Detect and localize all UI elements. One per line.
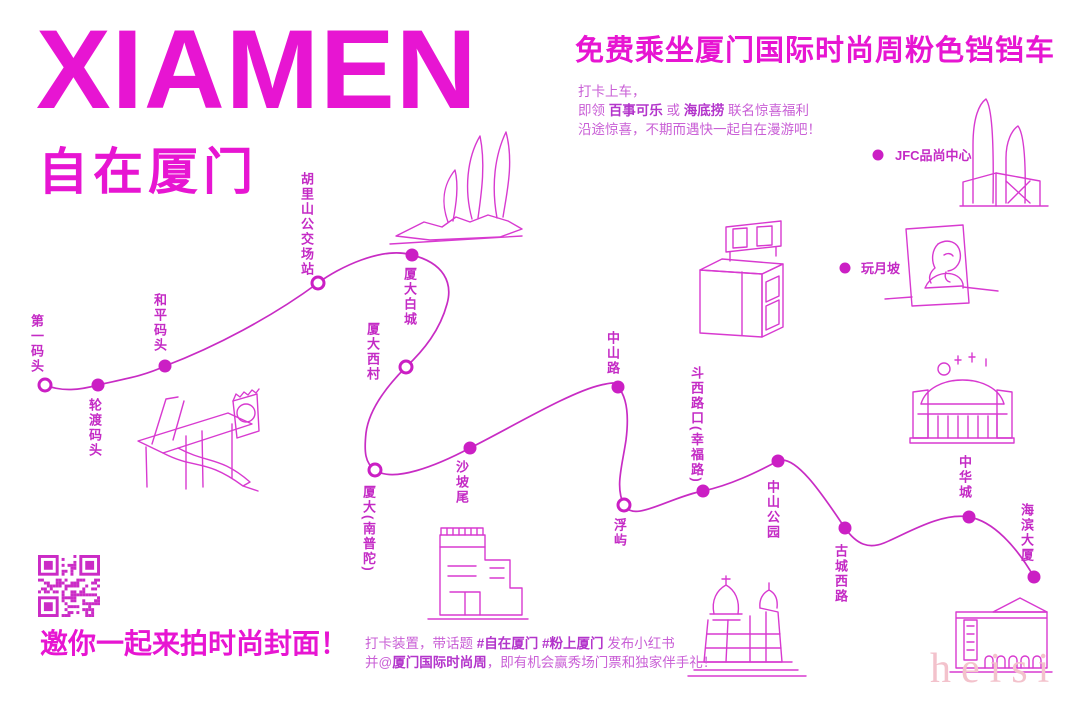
copy-line-2: 即领 百事可乐 或 海底捞 联名惊喜福利: [578, 101, 821, 120]
jfc-landmark-dot: [873, 150, 884, 161]
copy-line-1: 打卡上车，: [578, 82, 821, 101]
jfc-towers-illustration: [960, 99, 1048, 206]
stop-label-fuyu: 浮屿: [613, 518, 626, 548]
stop-label-zhongshangongyuan: 中山公园: [766, 480, 779, 540]
stop-label-hepingmatou: 和平码头: [153, 293, 166, 353]
stop-label-lundumatou: 轮渡码头: [88, 398, 101, 458]
moon-lady-illustration: [885, 225, 998, 306]
poster-subtitle: 自在厦门: [38, 147, 258, 197]
stop-label-douxilukou: 斗西路口(幸福路): [690, 366, 703, 484]
stop-label-nanputuo: 厦大(南普陀): [362, 485, 375, 573]
note-line-2: 并@厦门国际时尚周，即有机会赢秀场门票和独家伴手礼！: [365, 653, 716, 672]
wanyuepo-landmark-dot: [840, 263, 851, 274]
stop-label-xiadabaicheng: 厦大白城: [403, 267, 416, 327]
stop-label-shapowei: 沙坡尾: [455, 460, 468, 505]
stop-label-diyimatou: 第一码头: [30, 314, 43, 374]
stop-label-hulishan: 胡里山公交场站: [300, 172, 313, 277]
headline: 免费乘坐厦门国际时尚周粉色铛铛车: [575, 36, 1055, 68]
fashion-week-mention: 厦门国际时尚周: [392, 655, 487, 670]
stop-label-guchengxilu: 古城西路: [834, 544, 847, 604]
stop-label-zhonghuacheng: 中华城: [958, 455, 971, 500]
ferry-terminal-illustration: [138, 389, 259, 491]
pepsi-brand: 百事可乐: [609, 103, 663, 118]
watermark: heisi: [930, 648, 1059, 690]
zhongshan-building-illustration: [700, 221, 783, 337]
haidilao-brand: 海底捞: [684, 103, 725, 118]
shapowei-building-illustration: [428, 528, 528, 619]
poster-title: XIAMEN: [36, 14, 478, 126]
footer-note: 打卡装置，带话题 #自在厦门 #粉上厦门 发布小红书 并@厦门国际时尚周，即有机…: [365, 634, 716, 672]
note-line-1: 打卡装置，带话题 #自在厦门 #粉上厦门 发布小红书: [365, 634, 716, 653]
stop-label-zhongshanlu: 中山路: [606, 331, 619, 376]
hashtags: #自在厦门 #粉上厦门: [477, 636, 604, 651]
footer-tagline: 邀你一起来拍时尚封面！: [40, 630, 348, 658]
round-theater-illustration: [910, 353, 1014, 443]
sail-sculpture-illustration: [390, 132, 522, 244]
landmark-label-wanyuepo: 玩月坡: [861, 262, 900, 275]
copy-line-3: 沿途惊喜，不期而遇快一起自在漫游吧！: [578, 120, 821, 139]
tram-route-line: [45, 253, 1034, 577]
header-copy: 打卡上车， 即领 百事可乐 或 海底捞 联名惊喜福利 沿途惊喜，不期而遇快一起自…: [578, 82, 821, 139]
landmark-label-jfc: JFC品尚中心: [895, 149, 972, 162]
qr-code: [38, 555, 100, 617]
stop-label-xiadaxicun: 厦大西村: [366, 322, 379, 382]
stop-label-haibindasha: 海滨大厦: [1020, 503, 1033, 563]
